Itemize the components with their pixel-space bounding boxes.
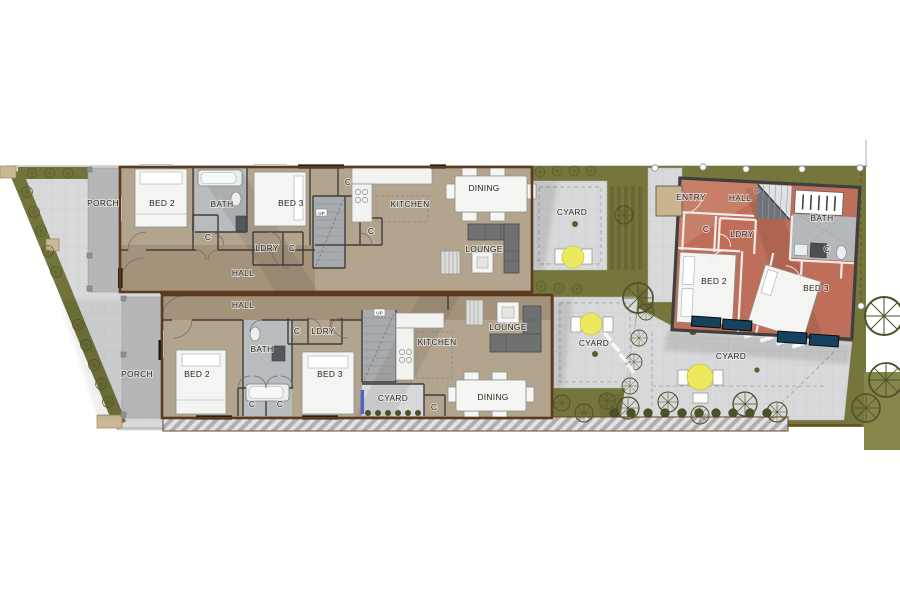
room-label-kitchen: KITCHEN [418,337,457,347]
stair-up-label: UP [376,311,382,316]
floor-plan-svg: PORCH BED 2 BATH BED 3 C LDRY C HALL C K… [0,0,900,600]
shower-icon [272,346,285,361]
tree-icon [45,168,55,178]
tree-icon [29,207,40,218]
room-label-closet: C [345,177,351,187]
stair-up-label: UP [754,189,760,194]
room-label-bed3: BED 3 [317,369,343,379]
room-label-bed2: BED 2 [149,198,175,208]
room-label-bed3: BED 3 [278,198,304,208]
room-label-hall: HALL [729,193,751,203]
room-label-ldry: LDRY [311,326,335,336]
room-label-closet: C [824,244,830,254]
room-label-bath: BATH [811,213,834,223]
table-yellow-icon [562,246,584,268]
bathtub-icon [198,170,242,186]
room-label-closet: C [249,399,255,409]
chair-icon [603,317,613,332]
room-label-closet: C [294,326,300,336]
tree-icon [852,394,880,422]
tree-icon [36,226,47,237]
stairs-icon [756,184,792,220]
room-label-dining: DINING [477,392,508,402]
room-label-hall: HALL [232,300,254,310]
stair-up-label: UP [318,211,324,216]
room-label-dining: DINING [468,183,499,193]
fence-post [0,166,16,178]
room-label-bed2: BED 2 [701,276,727,286]
tree-icon [586,166,596,176]
room-label-lounge: LOUNGE [465,244,502,254]
room-label-closet: C [205,232,211,242]
room-label-porch: PORCH [121,369,153,379]
tree-icon [536,281,546,291]
site-plan: PORCH BED 2 BATH BED 3 C LDRY C HALL C K… [0,0,900,600]
shelf-icon [466,300,483,325]
bed-icon [302,352,354,414]
room-label-bed3: BED 3 [803,283,829,293]
tree-icon [63,168,73,178]
bed-icon [176,350,226,414]
room-label-bed2: BED 2 [184,369,210,379]
unit-top-stair-floor [313,196,345,268]
tree-icon [552,166,562,176]
room-label-closet: C [289,243,295,253]
room-label-closet: C [431,402,437,412]
porch-top [88,168,121,292]
table-yellow-icon [580,313,602,335]
tree-icon [535,167,545,177]
tree-icon [865,297,900,335]
room-label-entry: ENTRY [676,192,706,202]
porch-bottom [122,297,162,418]
tree-icon [623,283,653,313]
tree-icon [599,393,615,409]
coffee-table-icon [472,252,493,273]
tree-icon [622,378,638,394]
bed-icon [676,252,736,325]
tree-icon [554,395,570,411]
shower-icon [236,216,246,231]
room-label-closet: C [703,224,709,234]
tree-icon [51,267,62,278]
unit-bottom-hall-floor [162,295,552,320]
courtyard-label: CYARD [716,351,746,361]
room-label-kitchen: KITCHEN [391,199,430,209]
room-label-closet: C [277,399,283,409]
shrub-dot [754,367,759,372]
room-label-bath: BATH [211,199,234,209]
sink-icon [794,244,808,256]
courtyard-label: CYARD [579,338,609,348]
chair-icon [713,370,723,385]
chair-icon [571,317,581,332]
tree-icon [631,330,647,346]
tree-icon [27,168,37,178]
tree-icon [554,283,564,293]
tree-icon [22,187,33,198]
coffee-table-icon [497,302,519,323]
courtyard-label: CYARD [378,393,408,403]
tree-icon [569,166,579,176]
courtyard-label: CYARD [557,207,587,217]
shelf-icon [441,251,460,274]
chair-icon [678,370,688,385]
tree-icon [658,392,678,412]
table-yellow-icon [687,364,713,390]
room-label-porch: PORCH [87,198,119,208]
room-label-closet: C [368,226,374,236]
tree-icon [572,284,582,294]
tree-icon [43,246,54,257]
room-label-ldry: LDRY [255,243,279,253]
room-label-ldry: LDRY [730,229,754,239]
tree-icon [638,304,654,320]
window-blue [361,390,364,414]
tree-icon [575,404,593,422]
toilet-icon [250,327,260,341]
shrub-dot [572,221,578,227]
room-label-bath: BATH [251,344,274,354]
chair-icon [693,393,708,403]
shrub-dot [592,351,598,357]
room-label-lounge: LOUNGE [489,322,526,332]
room-label-hall: HALL [232,268,254,278]
